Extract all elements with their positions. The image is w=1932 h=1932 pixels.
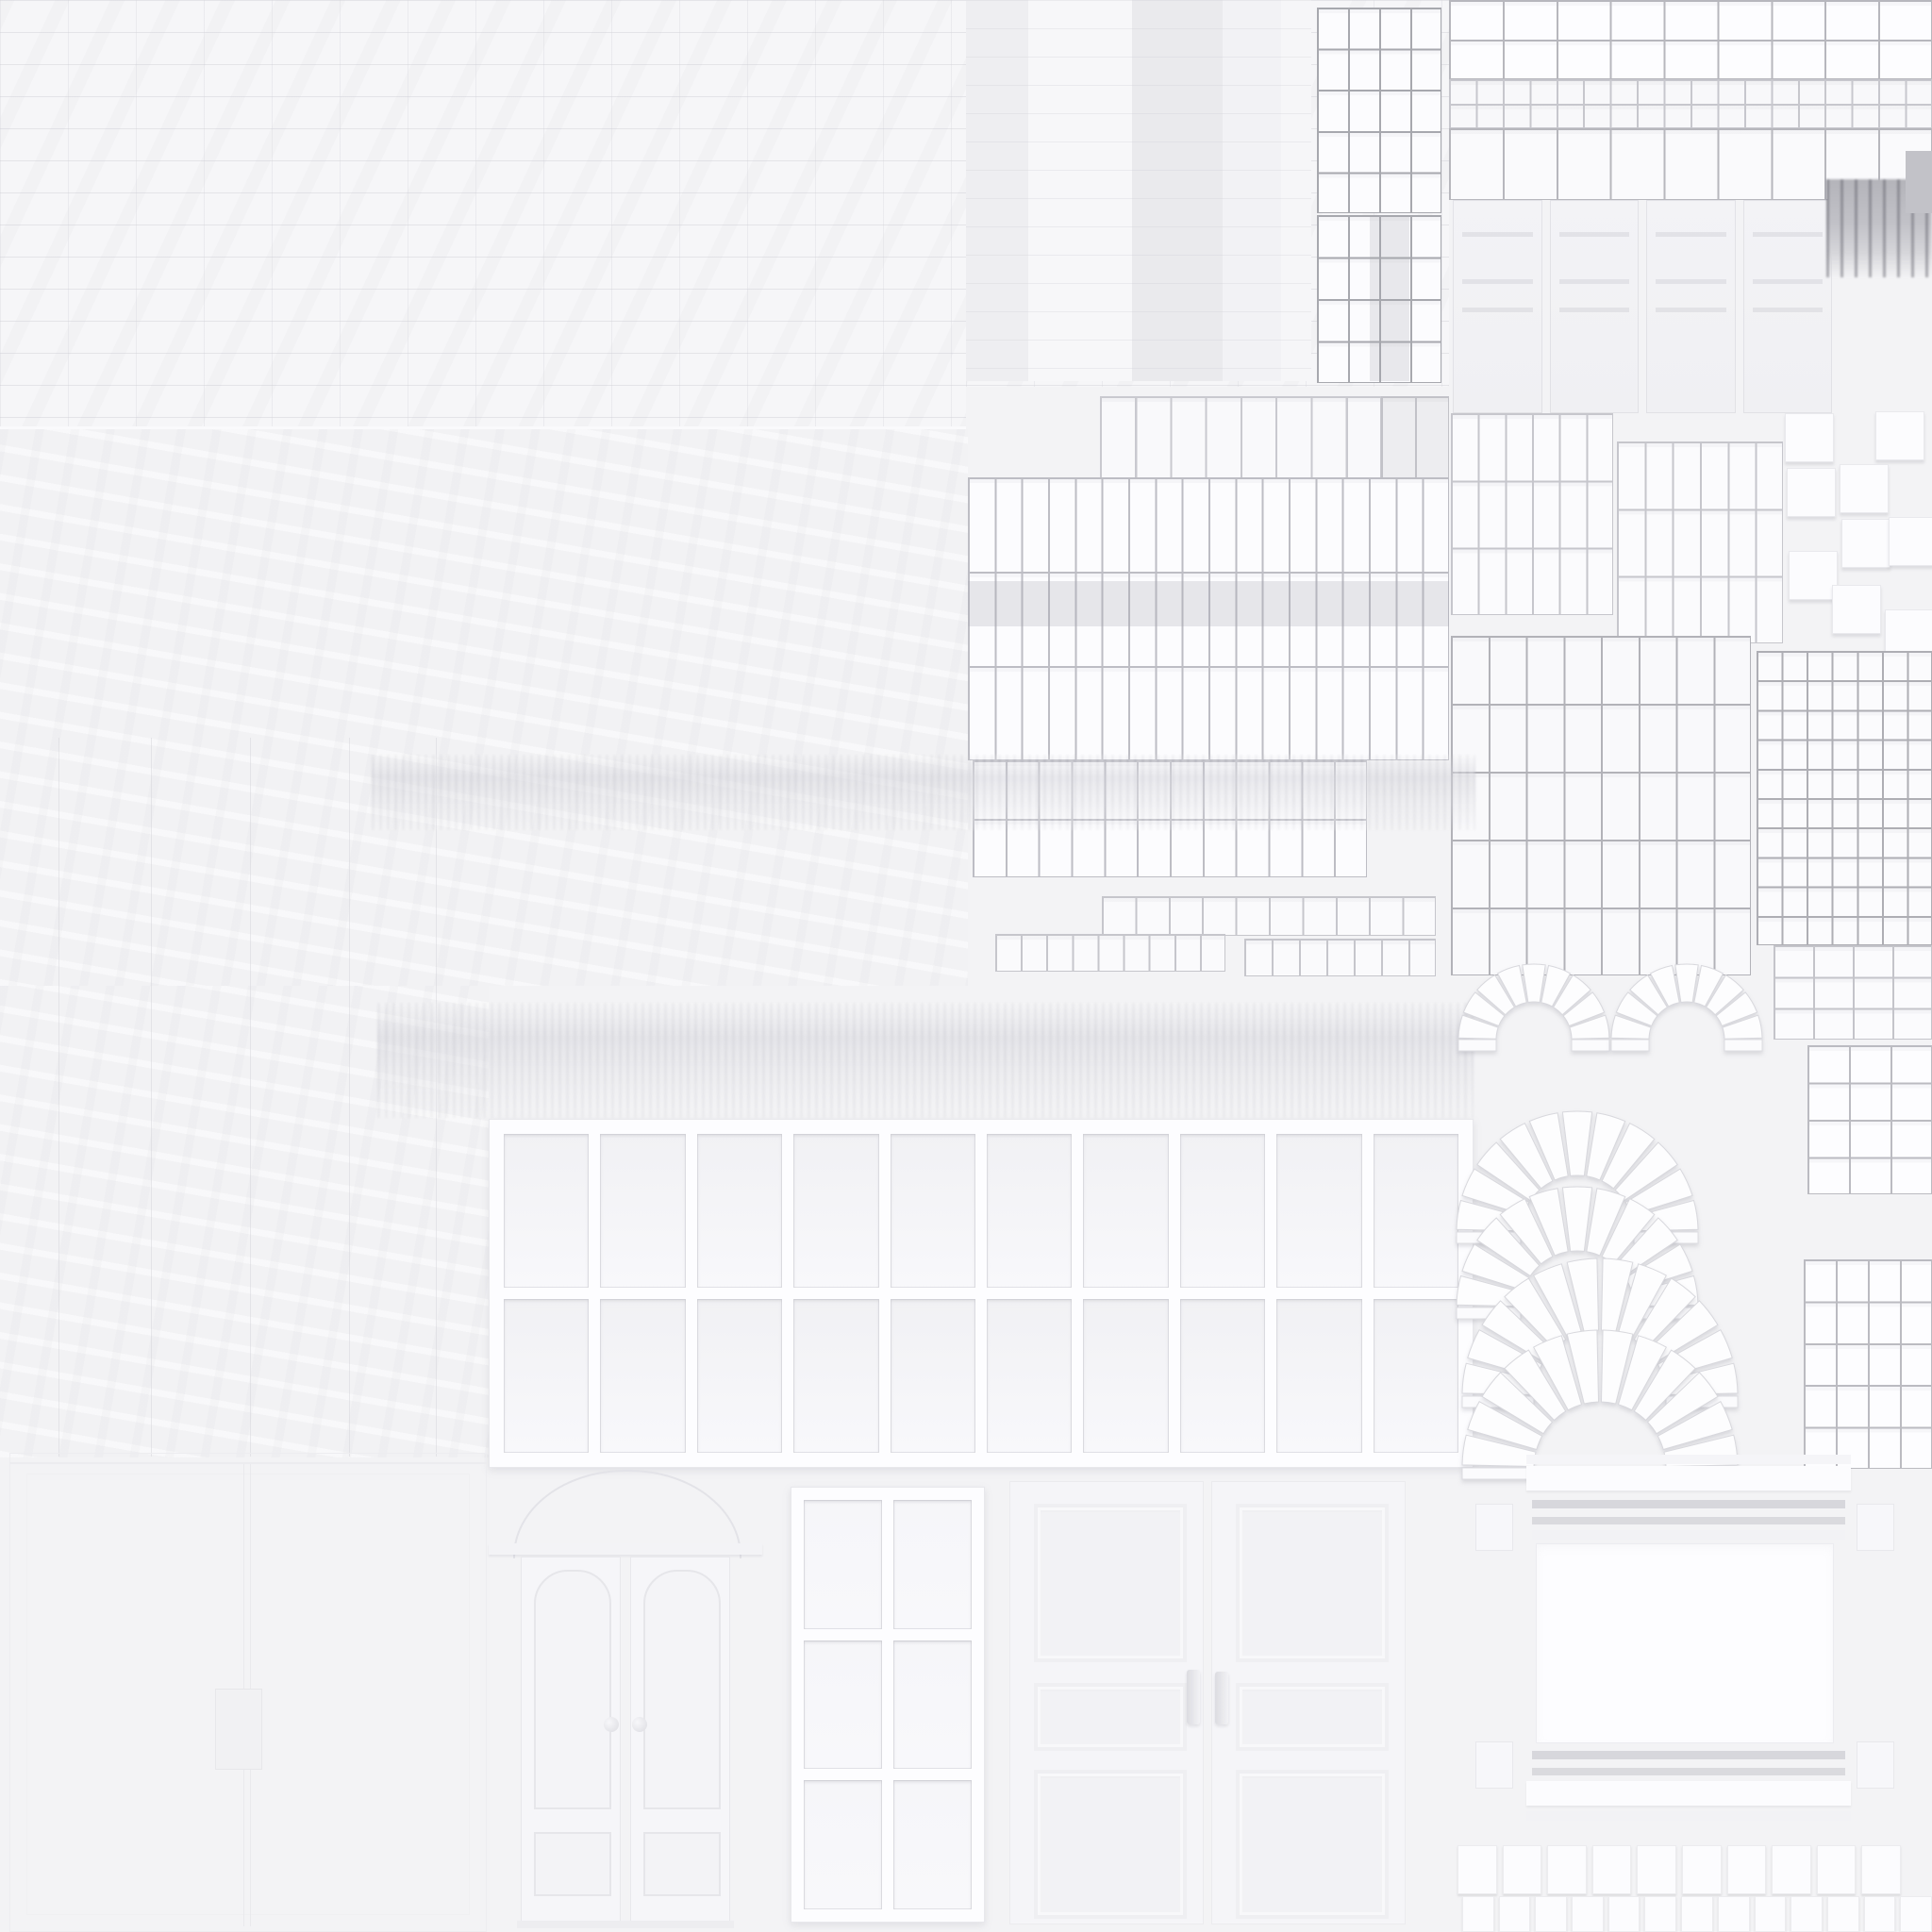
- wall-panel-strip-panel-3: [1646, 200, 1736, 413]
- wall-panel-strip-detail-2: [1656, 308, 1726, 312]
- arched-entry-door-leaf-left: [521, 1557, 621, 1924]
- square-grid-c: [1804, 1259, 1932, 1469]
- board-seams-line-1: [151, 738, 152, 1457]
- grate-corner-block: [1906, 151, 1932, 213]
- board-seams-line-2: [250, 738, 251, 1457]
- storefront-glazing-pane-18: [1180, 1299, 1265, 1453]
- square-grid-b: [1807, 1045, 1932, 1194]
- entablature-sign-panel-bracket-top-right: [1857, 1504, 1894, 1551]
- dentil-row-small-tile-4: [1572, 1896, 1604, 1932]
- transom-band: [1449, 0, 1932, 79]
- storefront-glazing-pane-20: [1374, 1299, 1458, 1453]
- dentil-row-small-tile-7: [1681, 1896, 1713, 1932]
- wall-panel-strip-detail-2: [1462, 308, 1533, 312]
- storefront-glazing-pane-6: [987, 1134, 1072, 1288]
- pilaster-stripes-mortar-overlay: [966, 0, 1311, 381]
- paneled-double-door-right-panel-middle: [1236, 1683, 1389, 1751]
- board-seams-line-0: [58, 738, 59, 1457]
- storefront-glazing-pane-9: [1276, 1134, 1361, 1288]
- paneled-double-door-left-panel-top: [1034, 1504, 1187, 1662]
- entablature-sign-panel-cornice-bottom-rule-1: [1532, 1751, 1845, 1759]
- glazed-door-pane-2: [893, 1500, 972, 1629]
- paneled-double-door-leaf-right: [1211, 1481, 1406, 1924]
- dentil-row-small-tile-12: [1864, 1896, 1896, 1932]
- window-grid-upper: [1317, 8, 1441, 213]
- storefront-glazing-pane-1: [504, 1134, 589, 1288]
- small-tile-strip-a: [1102, 896, 1436, 936]
- storefront-glazing-pane-7: [1083, 1134, 1168, 1288]
- mosaic-grid: [1757, 651, 1932, 945]
- fascia-band-lower: [377, 1003, 1474, 1118]
- storefront-glazing-pane-3: [697, 1134, 782, 1288]
- storefront-glazing-pane-16: [987, 1299, 1072, 1453]
- dentil-row-large-tile-7: [1727, 1845, 1767, 1894]
- subway-row-top: [1100, 396, 1381, 491]
- arched-entry-door: [489, 1470, 762, 1932]
- brick-wall: [0, 0, 966, 443]
- arched-entry-door-lintel: [489, 1543, 762, 1555]
- arched-entry-door-left-bottom-panel: [534, 1832, 611, 1896]
- storefront-glazing-pane-12: [600, 1299, 685, 1453]
- texture-atlas: [0, 0, 1932, 1932]
- entablature-sign-panel-cornice-top-rule-1: [1532, 1500, 1845, 1508]
- wall-panel-strip-detail-0: [1462, 232, 1533, 237]
- paneled-double-door-leaf-left: [1009, 1481, 1204, 1924]
- tile-group-a: [1451, 413, 1613, 615]
- dentil-row-large-tile-10: [1861, 1845, 1901, 1894]
- board-seams-line-3: [349, 738, 350, 1457]
- tile-group-b: [1617, 441, 1783, 643]
- wall-panel-strip-detail-2: [1559, 308, 1630, 312]
- loose-tiles-1: [1785, 413, 1834, 462]
- entablature-sign-panel-cornice-bottom-rule-2: [1532, 1768, 1845, 1775]
- dentil-row-small-tile-6: [1644, 1896, 1676, 1932]
- entablature-sign-panel-cornice-bottom-edge: [1526, 1811, 1851, 1821]
- wall-panel-strip-detail-1: [1559, 279, 1630, 284]
- dentil-row-large-tile-6: [1682, 1845, 1722, 1894]
- square-grid-a: [1774, 945, 1932, 1040]
- loose-tiles-5: [1841, 519, 1890, 568]
- arched-entry-door-left-panel: [534, 1570, 611, 1809]
- window-shade-overlay: [1370, 217, 1409, 381]
- loose-tiles-4: [1840, 464, 1889, 513]
- dentil-row-large-tile-5: [1637, 1845, 1676, 1894]
- paneled-double-door-handle-2: [1215, 1672, 1228, 1724]
- storefront-glazing-pane-2: [600, 1134, 685, 1288]
- glazed-door-pane-3: [804, 1641, 882, 1770]
- brick-arch-small-2: [1604, 957, 1770, 1055]
- storefront-glazing-pane-8: [1180, 1134, 1265, 1288]
- wall-panel-strip-panel-1: [1453, 200, 1542, 413]
- entablature-sign-panel-cornice-bottom-bar: [1526, 1781, 1851, 1806]
- small-tile-strip-b: [995, 934, 1225, 972]
- entablature-sign-panel-cornice-top-base: [1532, 1530, 1845, 1540]
- storefront-glazing-panes: [504, 1134, 1458, 1453]
- wall-panel-strip-detail-1: [1656, 279, 1726, 284]
- gray-tile-pair: [1381, 396, 1449, 491]
- dentil-row-large-tile-9: [1817, 1845, 1857, 1894]
- arched-entry-door-leaf-right: [630, 1557, 730, 1924]
- arched-entry-door-knob-2: [632, 1717, 647, 1732]
- dentil-row-small: [1462, 1896, 1932, 1932]
- dentil-row-small-tile-8: [1718, 1896, 1750, 1932]
- entablature-sign-panel-bracket-top-left: [1475, 1504, 1513, 1551]
- storefront-glazing-pane-19: [1276, 1299, 1361, 1453]
- pilaster-stripes: [966, 0, 1311, 381]
- dentil-row-large-tile-1: [1457, 1845, 1497, 1894]
- glazed-door-pane-6: [893, 1780, 972, 1909]
- entablature-sign-panel-cornice-top-rule-2: [1532, 1517, 1845, 1524]
- storefront-glazing-pane-13: [697, 1299, 782, 1453]
- loose-tiles-7: [1789, 551, 1838, 600]
- storefront-glazing-pane-4: [793, 1134, 878, 1288]
- storefront-glazing-pane-15: [891, 1299, 975, 1453]
- dentil-row-small-tile-10: [1790, 1896, 1823, 1932]
- wall-panel-strip-detail-0: [1559, 232, 1630, 237]
- wall-panel-strip-detail-2: [1753, 308, 1824, 312]
- loose-tiles-6: [1889, 517, 1932, 566]
- dentil-row-large-tile-2: [1503, 1845, 1542, 1894]
- fascia-band-upper: [372, 755, 1475, 830]
- storefront-glazing: [489, 1119, 1474, 1468]
- storefront-glazing-pane-17: [1083, 1299, 1168, 1453]
- dentil-row-small-tile-5: [1608, 1896, 1641, 1932]
- paneled-double-door-right-panel-top: [1236, 1504, 1389, 1662]
- dentil-row-small-tile-9: [1755, 1896, 1787, 1932]
- tall-cell-grid: [1451, 636, 1751, 975]
- arched-entry-door-right-panel: [643, 1570, 721, 1809]
- wall-panel-strip-detail-1: [1753, 279, 1824, 284]
- entablature-sign-panel-cornice-top-bar: [1526, 1466, 1851, 1491]
- dentil-row-small-tile-13: [1900, 1896, 1932, 1932]
- dentil-row-large: [1457, 1845, 1901, 1894]
- thin-tile-band: [1449, 79, 1932, 128]
- dentil-row-large-tile-4: [1592, 1845, 1632, 1894]
- entablature-sign-panel-bracket-bottom-right: [1857, 1741, 1894, 1789]
- arched-entry-door-right-bottom-panel: [643, 1832, 721, 1896]
- storefront-glazing-pane-11: [504, 1299, 589, 1453]
- paneled-double-door-left-panel-middle: [1034, 1683, 1187, 1751]
- tile-shadow-band: [968, 581, 1449, 626]
- loose-tiles-2: [1875, 411, 1924, 460]
- small-tile-strip-c: [1244, 939, 1436, 976]
- entablature-sign-panel-blank-panel: [1536, 1543, 1834, 1743]
- entablature-sign-panel-bracket-bottom-left: [1475, 1741, 1513, 1789]
- glazed-door-pane-4: [893, 1641, 972, 1770]
- dentil-row-large-tile-8: [1772, 1845, 1811, 1894]
- dentil-row-small-tile-11: [1827, 1896, 1859, 1932]
- glazed-door-pane-1: [804, 1500, 882, 1629]
- storefront-glazing-pane-14: [793, 1299, 878, 1453]
- wall-panel-strip-detail-0: [1753, 232, 1824, 237]
- paneled-double-door-right-panel-bottom: [1236, 1770, 1389, 1919]
- glazed-door-pane-5: [804, 1780, 882, 1909]
- service-door-faint-handle-plate: [215, 1689, 262, 1770]
- wall-panel-strip-detail-0: [1656, 232, 1726, 237]
- arched-entry-door-knob-1: [604, 1717, 619, 1732]
- wall-panel-strip: [1453, 200, 1832, 413]
- dentil-row-small-tile-3: [1535, 1896, 1567, 1932]
- storefront-glazing-pane-10: [1374, 1134, 1458, 1288]
- paneled-double-door-left-panel-bottom: [1034, 1770, 1187, 1919]
- wall-panel-strip-detail-1: [1462, 279, 1533, 284]
- loose-tiles-3: [1787, 468, 1836, 517]
- dentil-row-small-tile-2: [1499, 1896, 1531, 1932]
- loose-tiles-8: [1832, 585, 1881, 634]
- paneled-double-door: [1002, 1474, 1413, 1932]
- entablature-sign-panel: [1472, 1453, 1898, 1840]
- dentil-row-large-tile-3: [1547, 1845, 1587, 1894]
- wall-panel-strip-panel-4: [1743, 200, 1833, 413]
- arched-entry-door-threshold: [517, 1921, 734, 1928]
- glazed-door: [791, 1487, 985, 1923]
- wall-panel-strip-panel-2: [1550, 200, 1640, 413]
- paneled-double-door-handle-1: [1187, 1670, 1200, 1724]
- service-door-faint: [9, 1453, 487, 1932]
- entablature-sign-panel-cornice-top-edge: [1526, 1455, 1851, 1464]
- glazed-door-panes: [804, 1500, 972, 1909]
- dentil-row-small-tile-1: [1462, 1896, 1494, 1932]
- brick-arch-small-1: [1451, 957, 1617, 1055]
- storefront-glazing-pane-5: [891, 1134, 975, 1288]
